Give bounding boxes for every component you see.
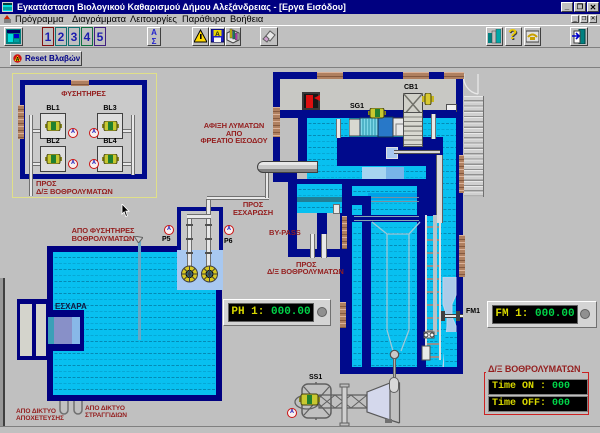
svg-text:A: A: [16, 57, 20, 63]
svg-text:A: A: [215, 31, 220, 38]
